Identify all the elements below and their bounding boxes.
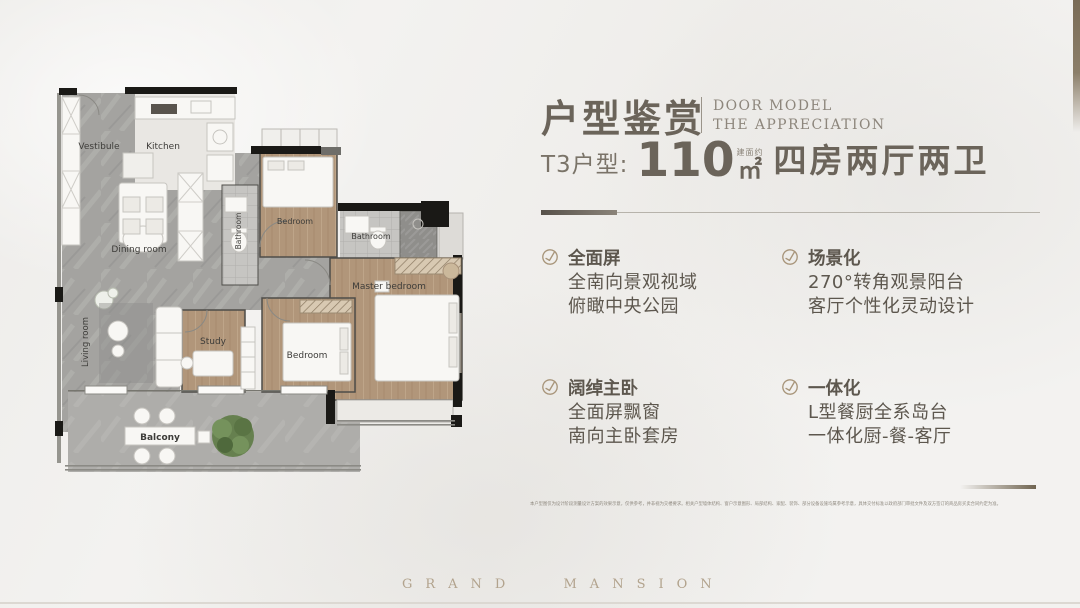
- subtitle-en-line1: DOOR MODEL: [713, 97, 886, 116]
- divider-rule: [617, 212, 1040, 213]
- disclaimer-text: 本户型图仅为设计阶段测量设计方案的效果示意，仅供参考，并非视为交楼要求。相关户型…: [530, 500, 1032, 506]
- room-label-master: Master bedroom: [352, 282, 426, 292]
- title-divider: [701, 97, 702, 133]
- feature-head: 场景化: [781, 246, 1016, 268]
- feature-title: 阔绰主卧: [568, 375, 638, 400]
- feature-title: 场景化: [808, 245, 861, 270]
- feature-line: 俯瞰中央公园: [568, 295, 776, 319]
- footer-accent-rule: [960, 485, 1036, 489]
- floorplan-image: Vestibule Kitchen Dining room Bathroom B…: [55, 85, 467, 487]
- area-unit-wrap: 建面约 ㎡: [737, 147, 764, 184]
- room-label-dining: Dining room: [111, 245, 166, 255]
- bottom-rule: [0, 602, 1080, 604]
- rooms-description: 四房两厅两卫: [774, 134, 990, 184]
- room-label-kitchen: Kitchen: [146, 142, 180, 152]
- feature-line: 全南向景观视域: [568, 271, 776, 295]
- feature-line: 全面屏飘窗: [568, 401, 776, 425]
- feature-body: L型餐厨全系岛台 一体化厨-餐-客厅: [808, 401, 1016, 449]
- section-divider: [541, 210, 1040, 215]
- feature-line: L型餐厨全系岛台: [808, 401, 1016, 425]
- unit-type-label: T3户型:: [541, 145, 628, 184]
- divider-accent: [541, 210, 617, 215]
- title-subtitle-en: DOOR MODEL THE APPRECIATION: [713, 97, 886, 135]
- feature-head: 一体化: [781, 376, 1016, 398]
- feature-title: 全面屏: [568, 245, 621, 270]
- slide: Vestibule Kitchen Dining room Bathroom B…: [0, 0, 1080, 608]
- check-circle-icon: [541, 378, 559, 396]
- room-label-bedroom-mid: Bedroom: [287, 351, 328, 361]
- feature-line: 南向主卧套房: [568, 425, 776, 449]
- brand-wordmark: GRAND MANSION: [402, 577, 725, 592]
- area-value: 110: [636, 137, 734, 184]
- feature-body: 全面屏飘窗 南向主卧套房: [568, 401, 776, 449]
- feature-head: 阔绰主卧: [541, 376, 776, 398]
- feature-line: 客厅个性化灵动设计: [808, 295, 1016, 319]
- unit-headline: T3户型: 110 建面约 ㎡ 四房两厅两卫: [541, 134, 990, 184]
- feature-line: 一体化厨-餐-客厅: [808, 425, 1016, 449]
- feature-integrated: 一体化 L型餐厨全系岛台 一体化厨-餐-客厅: [781, 376, 1016, 449]
- feature-scene: 场景化 270°转角观景阳台 客厅个性化灵动设计: [781, 246, 1016, 319]
- feature-master: 阔绰主卧 全面屏飘窗 南向主卧套房: [541, 376, 776, 449]
- room-label-study: Study: [200, 337, 227, 347]
- subtitle-en-line2: THE APPRECIATION: [713, 116, 886, 135]
- feature-title: 一体化: [808, 375, 861, 400]
- room-label-vestibule: Vestibule: [78, 142, 120, 152]
- tree-icon: [212, 415, 254, 457]
- room-label-living: Living room: [81, 317, 91, 367]
- feature-line: 270°转角观景阳台: [808, 271, 1016, 295]
- room-label-bedroom-top: Bedroom: [277, 217, 313, 226]
- feature-fullscreen: 全面屏 全南向景观视域 俯瞰中央公园: [541, 246, 776, 319]
- check-circle-icon: [781, 378, 799, 396]
- room-label-balcony: Balcony: [140, 433, 180, 443]
- area-unit: ㎡: [738, 158, 762, 182]
- feature-head: 全面屏: [541, 246, 776, 268]
- corner-accent-bar: [1073, 0, 1080, 132]
- feature-body: 270°转角观景阳台 客厅个性化灵动设计: [808, 271, 1016, 319]
- feature-body: 全南向景观视域 俯瞰中央公园: [568, 271, 776, 319]
- check-circle-icon: [541, 248, 559, 266]
- check-circle-icon: [781, 248, 799, 266]
- room-label-bathroom-main: Bathroom: [351, 232, 391, 241]
- room-label-bathroom-small: Bathroom: [234, 213, 243, 250]
